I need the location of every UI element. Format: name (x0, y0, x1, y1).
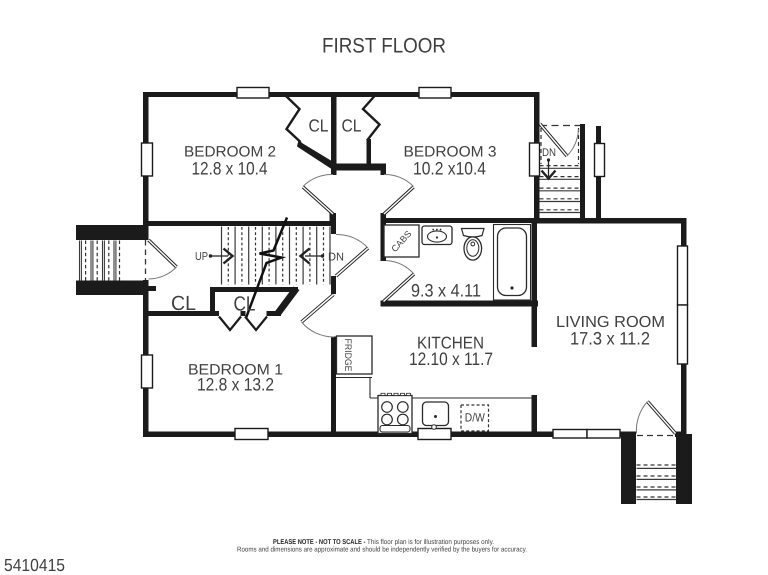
svg-text:12.10 x 11.7: 12.10 x 11.7 (409, 349, 493, 369)
svg-text:FIRST FLOOR: FIRST FLOOR (322, 35, 446, 58)
svg-text:FRIDGE: FRIDGE (342, 339, 353, 372)
svg-text:12.8 x 10.4: 12.8 x 10.4 (192, 159, 268, 179)
svg-text:CL: CL (309, 116, 329, 136)
svg-text:DN: DN (328, 252, 344, 264)
svg-text:5410415: 5410415 (4, 555, 65, 575)
svg-text:D/W: D/W (465, 411, 486, 425)
svg-text:CL: CL (234, 293, 256, 316)
svg-text:CL: CL (342, 116, 362, 136)
svg-text:UP: UP (195, 251, 208, 263)
svg-text:Rooms and dimensions are appro: Rooms and dimensions are approximate and… (237, 546, 527, 554)
svg-text:12.8 x 13.2: 12.8 x 13.2 (197, 375, 274, 395)
svg-text:9.3 x 4.11: 9.3 x 4.11 (411, 281, 481, 301)
svg-text:DN: DN (542, 147, 556, 159)
svg-text:PLEASE NOTE - NOT TO SCALE - T: PLEASE NOTE - NOT TO SCALE - This floor … (273, 538, 494, 546)
svg-text:10.2 x10.4: 10.2 x10.4 (413, 159, 486, 179)
svg-text:CL: CL (171, 292, 196, 315)
svg-text:17.3 x 11.2: 17.3 x 11.2 (570, 329, 650, 349)
